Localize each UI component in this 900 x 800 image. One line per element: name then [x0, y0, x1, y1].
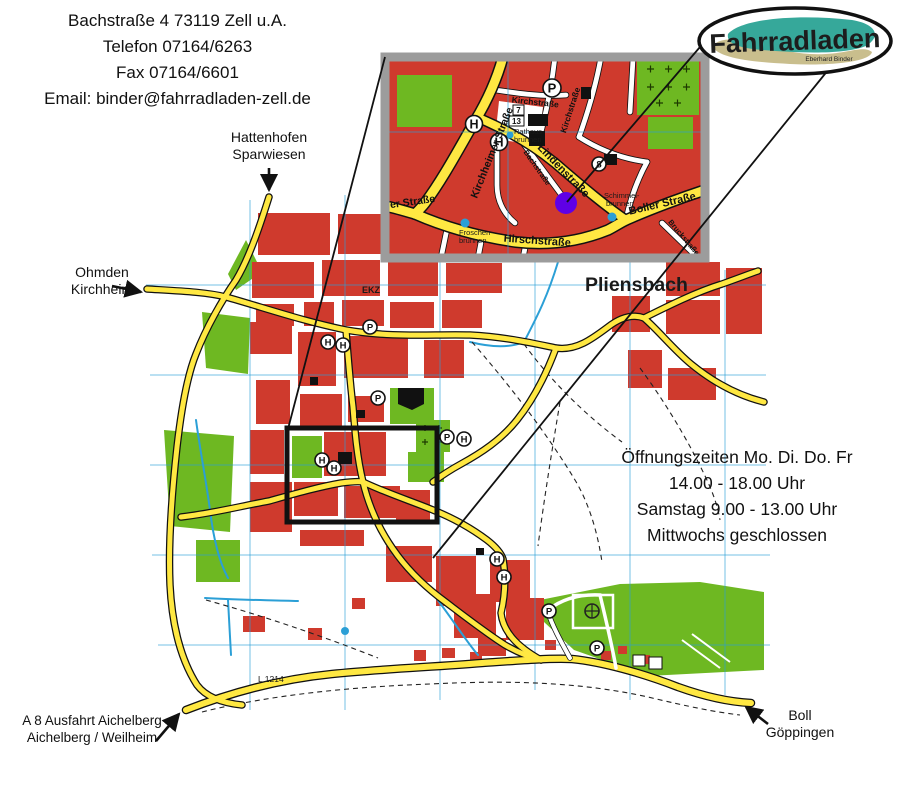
inset-map: P H H 8 7 13 Kirchheimer Straße er Straß…	[385, 57, 705, 258]
parking-icon: P	[371, 391, 385, 405]
area-label: EKZ	[362, 285, 381, 295]
contact-email: Email: binder@fahrradladen-zell.de	[20, 86, 335, 112]
svg-text:P: P	[367, 323, 374, 334]
parking-icon: P	[590, 641, 604, 655]
parking-icon: P	[363, 320, 377, 334]
shop-logo: Fahrradladen Eberhard Binder	[699, 8, 891, 74]
svg-text:P: P	[594, 644, 601, 655]
parking-icon: P	[543, 79, 561, 97]
svg-text:brunnen: brunnen	[606, 199, 634, 208]
place-label: Pliensbach	[585, 274, 688, 296]
svg-text:P: P	[548, 81, 557, 96]
sports-field-icon	[585, 604, 599, 618]
bus-stop-icon: H	[466, 116, 483, 133]
svg-text:brunnen: brunnen	[514, 135, 542, 144]
fountain-dot	[507, 132, 514, 139]
svg-text:H: H	[469, 118, 478, 132]
direction-text: Göppingen	[738, 724, 862, 741]
direction-text: Ohmden	[42, 264, 162, 281]
svg-text:H: H	[461, 435, 468, 446]
svg-text:H: H	[494, 555, 501, 566]
hours-title: Öffnungszeiten Mo. Di. Do. Fr	[585, 444, 889, 470]
contact-phone: Telefon 07164/6263	[20, 34, 335, 60]
svg-text:H: H	[325, 338, 332, 349]
hours-weekdays: 14.00 - 18.00 Uhr	[585, 470, 889, 496]
contact-address: Bachstraße 4 73119 Zell u.A.	[20, 8, 335, 34]
hours-closed: Mittwochs geschlossen	[585, 522, 889, 548]
bus-stop-icon: H	[327, 461, 341, 475]
parking-icon: P	[440, 430, 454, 444]
svg-text:13: 13	[512, 117, 521, 126]
bus-stop-icon: H	[336, 338, 350, 352]
hours-saturday: Samstag 9.00 - 13.00 Uhr	[585, 496, 889, 522]
svg-text:H: H	[501, 573, 508, 584]
svg-text:7: 7	[516, 106, 521, 115]
logo-title: Fahrradladen	[709, 23, 881, 59]
direction-label-west: Ohmden Kirchheim	[42, 264, 162, 298]
bus-stop-icon: H	[321, 335, 335, 349]
svg-text:H: H	[340, 341, 347, 352]
bus-stop-icon: H	[497, 570, 511, 584]
fountain-dot	[341, 627, 349, 635]
bus-stop-icon: H	[457, 432, 471, 446]
svg-text:P: P	[546, 607, 553, 618]
direction-text: Kirchheim	[42, 281, 162, 298]
fountain-dot	[461, 219, 470, 228]
direction-text: Sparwiesen	[204, 146, 334, 163]
direction-label-southwest: A 8 Ausfahrt Aichelberg Aichelberg / Wei…	[6, 712, 178, 746]
parking-icon: P	[542, 604, 556, 618]
bus-stop-icon: H	[490, 552, 504, 566]
map-page: { "contact": { "line1": "Bachstraße 4 73…	[0, 0, 900, 800]
logo-subtitle: Eberhard Binder	[805, 56, 853, 63]
direction-text: Aichelberg / Weilheim	[6, 729, 178, 746]
direction-text: A 8 Ausfahrt Aichelberg	[6, 712, 178, 729]
road-ref-label: L 1214	[258, 674, 284, 684]
fountain-dot	[608, 213, 617, 222]
direction-label-southeast: Boll Göppingen	[738, 707, 862, 741]
svg-text:brunnen: brunnen	[459, 236, 487, 245]
svg-text:H: H	[319, 456, 326, 467]
contact-fax: Fax 07164/6601	[20, 60, 335, 86]
direction-text: Boll	[738, 707, 862, 724]
svg-text:P: P	[444, 433, 451, 444]
map-canvas: P P P P P H H H H H H H Pliensbach L 121…	[0, 0, 900, 800]
direction-label-north: Hattenhofen Sparwiesen	[204, 129, 334, 163]
contact-block: Bachstraße 4 73119 Zell u.A. Telefon 071…	[20, 8, 335, 112]
svg-text:P: P	[375, 394, 382, 405]
svg-text:H: H	[331, 464, 338, 475]
opening-hours-block: Öffnungszeiten Mo. Di. Do. Fr 14.00 - 18…	[585, 444, 889, 548]
direction-text: Hattenhofen	[204, 129, 334, 146]
